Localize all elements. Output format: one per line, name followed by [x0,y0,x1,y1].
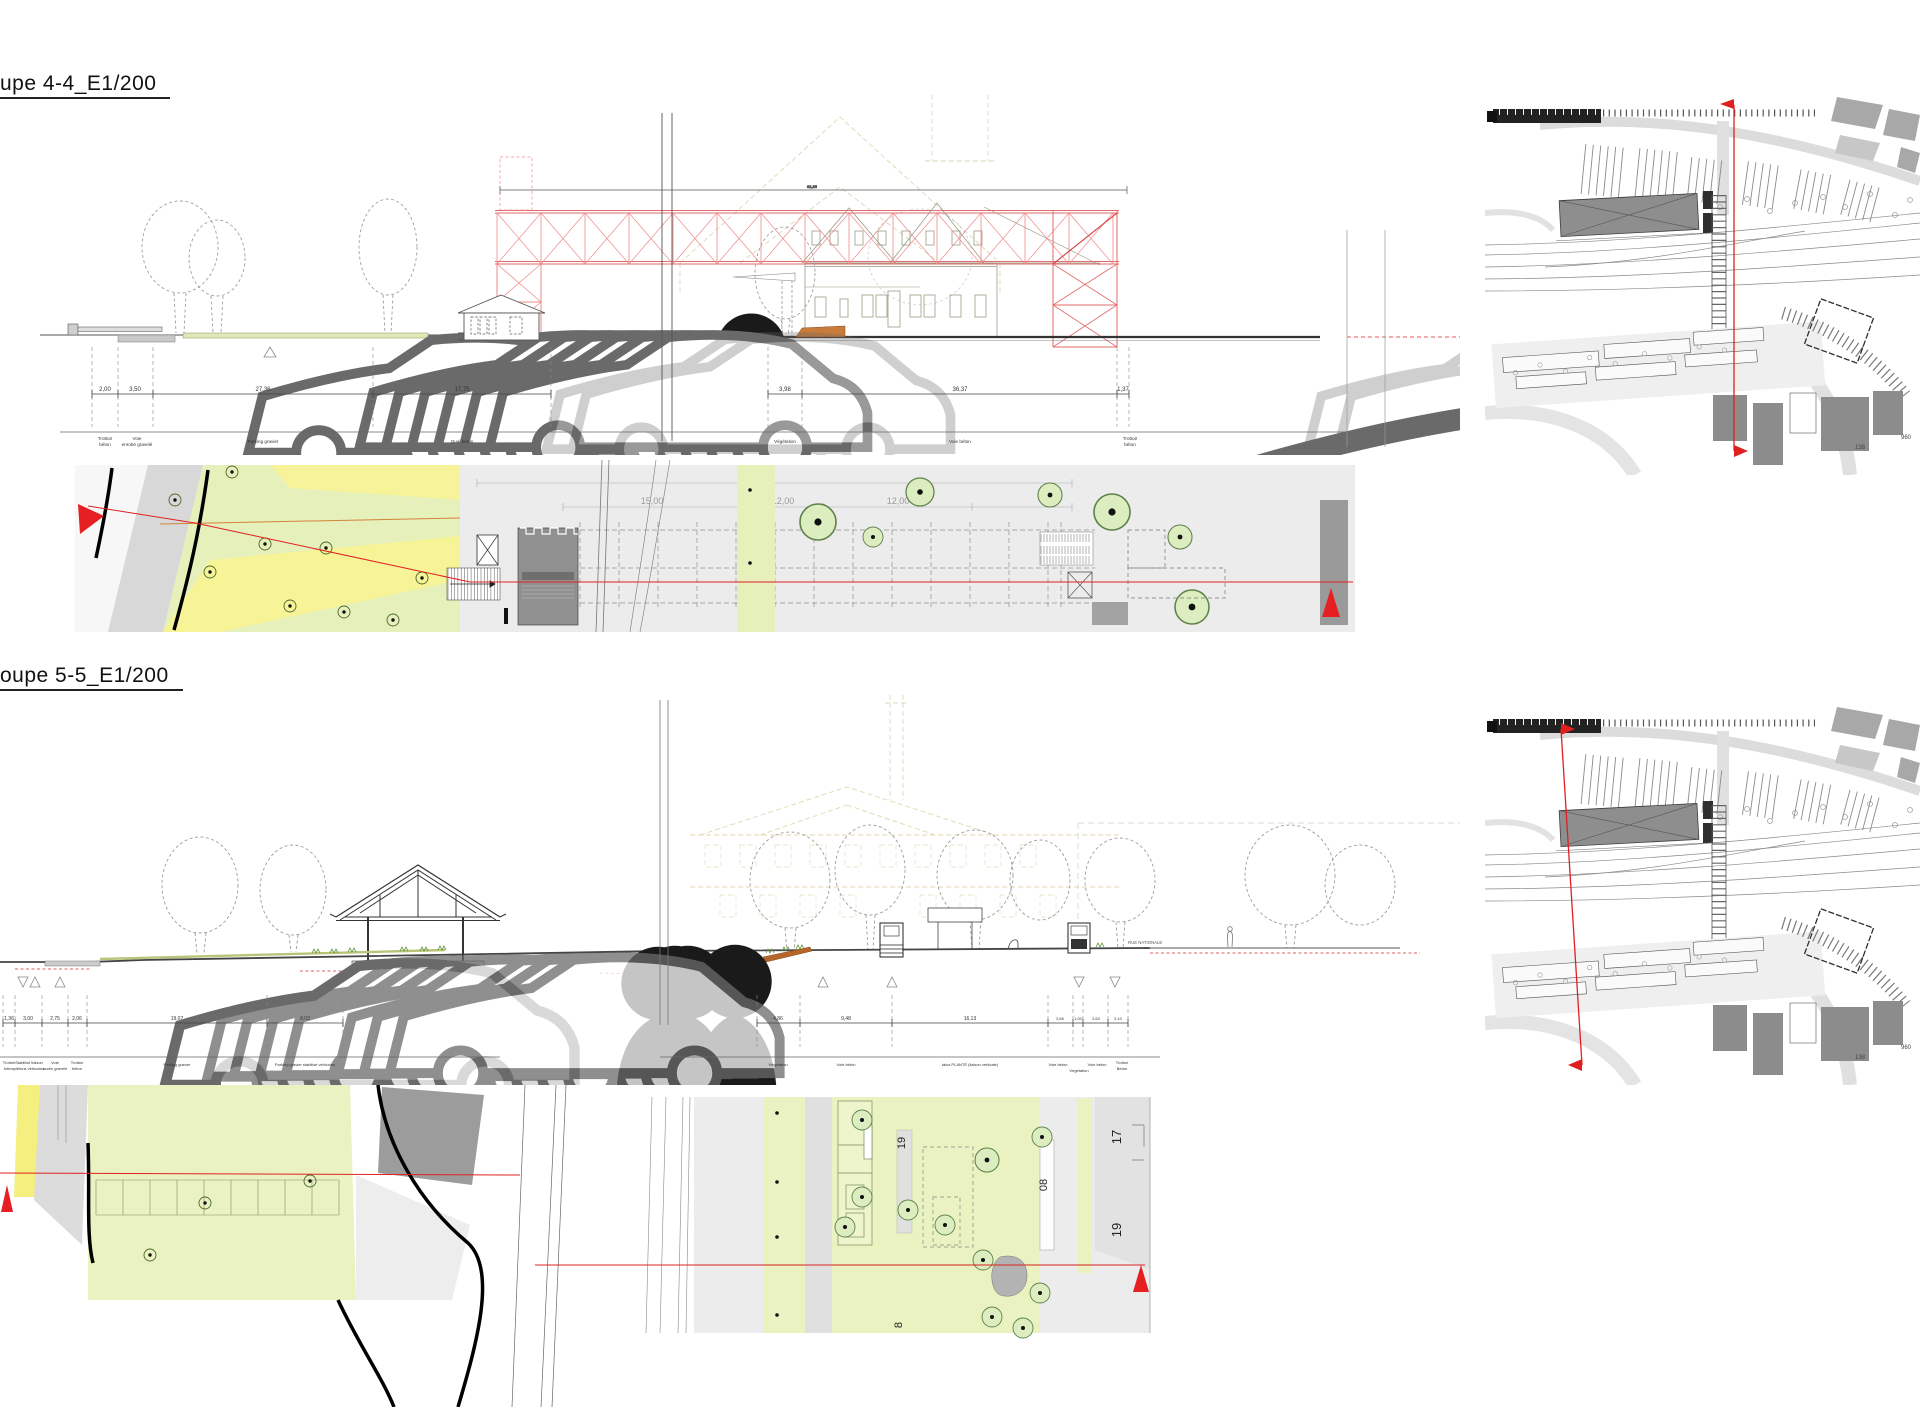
overall-dim-value: 62,35 [807,184,818,189]
dim-label: Trottoir [1123,436,1138,441]
plan-44-green-band [737,465,775,632]
ticket-machine-right [1068,923,1090,953]
dim-label: Végétation [768,1062,787,1067]
dim-label: Voie [133,436,142,441]
level-marker-triangle [264,347,276,357]
dim-label: Parking gravier [164,1062,192,1067]
site-map-base [1485,95,1920,475]
site-map-coupe-44: 138 960 [1485,95,1920,475]
dim-value: 9,48 [841,1016,851,1022]
ticket-machine-left [880,923,903,957]
dim-label: Parking gravier [248,439,279,444]
plan-55-cut-lines [512,1085,566,1407]
dim-label: Trottoir [1116,1060,1129,1065]
plan-label: 19 [896,1137,908,1149]
section-55-drawing: RUE NATIONALE 1,36 3,00 2,75 2,06 19,07 … [0,695,1460,1085]
map-building-number: 138 [1855,1055,1866,1061]
pond [992,1256,1027,1296]
dim-value: 16,13 [964,1016,977,1022]
dim-value: 36,37 [952,387,968,393]
dim-value: 2,00 [99,387,111,393]
pedestrian-outline-right [1227,927,1232,947]
map-building-number: 960 [1901,435,1912,441]
dim-label: Trottoir [98,436,113,441]
overall-dim-line: 62,35 [500,184,1127,194]
dim-value: 4,86 [773,1016,783,1022]
dim-value: 1,00 [1074,1016,1083,1021]
dim-label: Voie béton [1049,1062,1068,1067]
plan-dim: 12,00 [887,496,910,506]
dim-label: Trottoir [3,1060,16,1065]
timber-canopy [330,825,1075,967]
dim-label: accès gravelé [43,1066,68,1071]
dim-value: 17,75 [454,387,470,393]
faint-background-building-55 [690,695,1120,917]
dim-label: Voie béton [1088,1062,1107,1067]
dim-value: 2,66 [1056,1016,1065,1021]
dim-label: talus PLANTÉ (liaison verticale) [942,1062,999,1067]
dim-label: béton [4,1066,14,1071]
dim-value: 3,00 [23,1016,33,1022]
dim-value: 3,50 [129,387,141,393]
dim-value: 1,36 [4,1016,14,1022]
dim-value: 2,63 [1092,1016,1101,1021]
sitting-figure [1008,940,1018,949]
section-marker-left-55 [1,1185,13,1212]
dim-value: 8,03 [300,1016,310,1022]
dim-value: 19,07 [171,1016,184,1022]
plan-dim: 12,00 [772,496,795,506]
dim-label: béton [99,442,111,447]
dim-value: 2,06 [72,1016,82,1022]
dim-value: 3,98 [779,387,791,393]
dim-label: Végétation [774,439,796,444]
station-sign-panel [928,908,982,922]
dim-label: béton [1124,442,1136,447]
dim-value: 2,75 [50,1016,60,1022]
dim-label: piétons véhicules [14,1066,45,1071]
station-building [733,203,1100,337]
plan-label: 17 [1109,1130,1124,1144]
plan-strip-55: 19 08 8 17 19 [0,1085,1400,1407]
dim-value: 2,10 [1114,1016,1123,1021]
dim-value: 1,37 [1117,387,1129,393]
plan-label: 19 [1109,1223,1124,1237]
plan-55-right: 19 08 8 17 19 [535,1097,1150,1338]
dim-label: Stabilisé liaison [15,1060,43,1065]
dim-label: Trottoir [71,1060,84,1065]
coupe-55-title-text: oupe 5-5_E1/200 [0,664,183,691]
plan-strip-44: 15,00 12,00 12,00 [60,460,1400,635]
section-44-drawing: 62,35 [40,95,1460,455]
embankment-orange [763,947,812,962]
dim-label: Voie béton [837,1062,856,1067]
dim-label: enrobé gravelé [122,442,153,447]
dim-label: Voie [51,1060,60,1065]
dim-value: 27,36 [255,387,271,393]
plan-44-left-landscape [75,465,460,632]
dim-label: Parking gravier stabilisé véhicules [275,1062,335,1067]
plan-label: 08 [1038,1179,1050,1191]
street-furniture-people: RUE NATIONALE [165,908,1460,1085]
canopy-height-refline [1078,823,1460,945]
dim-label: béton [72,1066,82,1071]
site-map-coupe-55: 138 960 [1485,705,1920,1085]
plan-label: 8 [893,1322,905,1328]
trees-55 [162,825,1395,953]
road-piece-gray [378,1087,484,1185]
plan-55-left [0,1085,520,1407]
plan-dim: 15,00 [641,496,664,506]
upper-windows [812,231,982,245]
coupe-55-title: oupe 5-5_E1/200 [0,664,183,691]
dim-label: Béton [1117,1066,1127,1071]
map-building-number: 138 [1855,445,1866,451]
truss-right-tower [1053,210,1117,347]
map-building-number: 960 [1901,1045,1912,1051]
dim-label: Voie béton [949,439,971,444]
dim-label: Végétation [1069,1068,1088,1073]
dim-label: Quai béton [451,439,474,444]
street-label: RUE NATIONALE [1128,940,1162,945]
